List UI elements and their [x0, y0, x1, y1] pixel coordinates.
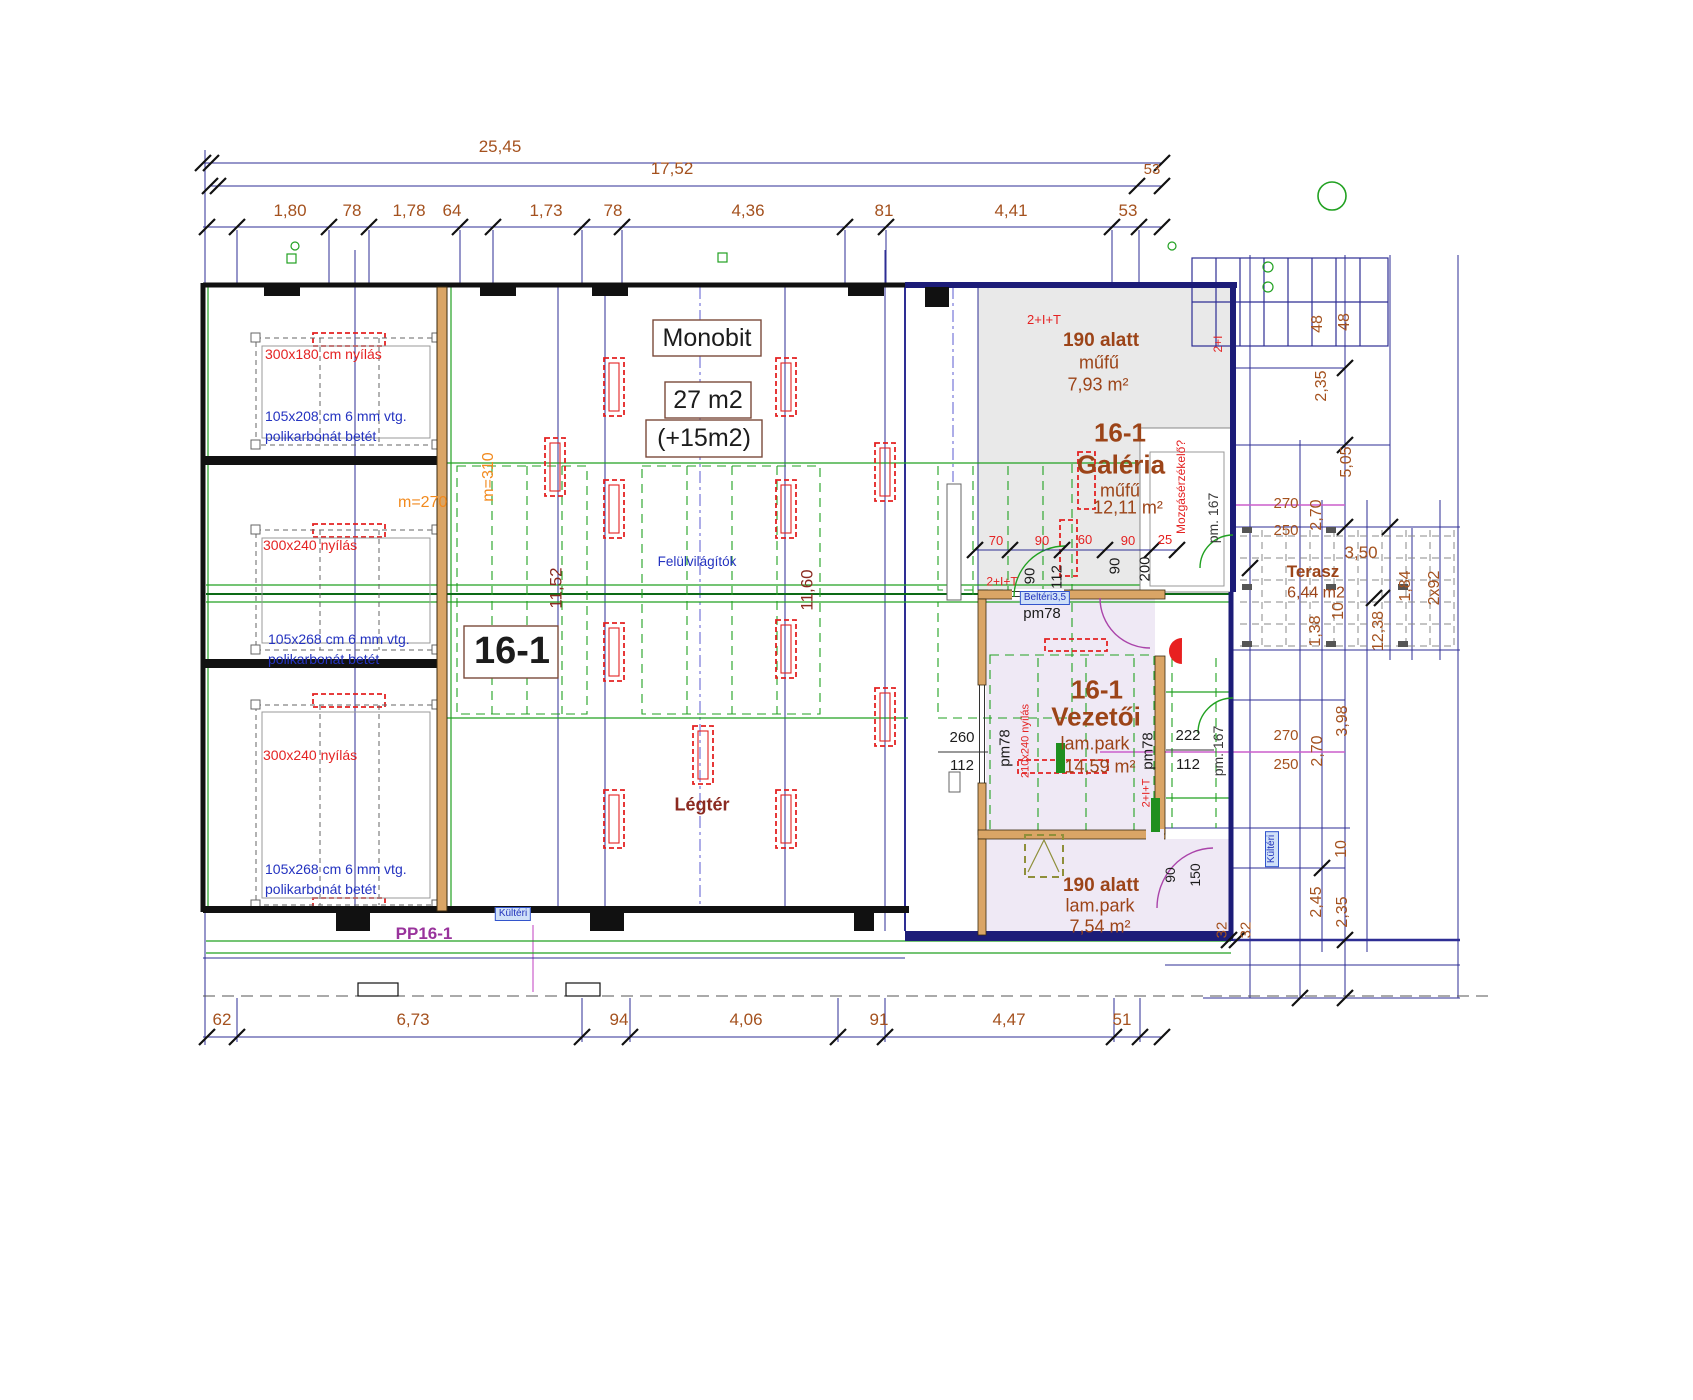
dim-top-seg: 4,41	[994, 202, 1027, 220]
hall-unit-label: 16-1	[474, 632, 550, 672]
door-dim: 60	[1078, 533, 1092, 547]
dim-right: 250	[1273, 757, 1298, 773]
bay3-infill-label: polikarbonát betét	[265, 881, 376, 897]
vezetoi-name-label: Vezetői	[1051, 703, 1141, 730]
dim-right: 2,35	[1335, 896, 1351, 927]
bay3-opening-label: 300x240 nyílás	[263, 747, 357, 763]
markers	[287, 182, 1346, 292]
door-dim: 90	[1035, 534, 1049, 548]
dim-top-inner: 17,52	[651, 160, 694, 178]
outdoor-tag-right: Kültéri	[1265, 831, 1279, 867]
hall-area-extra-label: (+15m2)	[657, 425, 751, 451]
lower-area-label: 7,54 m²	[1069, 918, 1130, 937]
dim-right: 2,70	[1310, 735, 1326, 766]
door-dim-v: 200	[1138, 556, 1153, 581]
lintel-label: pm78	[1023, 606, 1061, 622]
vezetoi-area-label: 14,59 m²	[1064, 758, 1135, 777]
galeria-area-label: 7,93 m²	[1067, 376, 1128, 395]
galeria-under-label: 190 alatt	[1063, 331, 1139, 351]
galeria-unit-label: 16-1	[1094, 419, 1146, 446]
dim-right: 270	[1273, 728, 1298, 744]
bay1-infill-label: 105x208 cm 6 mm vtg.	[265, 408, 407, 424]
door-width-label: 90	[1163, 867, 1177, 883]
door-dim: 70	[989, 534, 1003, 548]
dim-right: 32	[1239, 922, 1254, 939]
dim-right: 12,38	[1371, 611, 1387, 651]
label-boxes	[464, 320, 762, 678]
door-dim-v: 90	[1108, 558, 1123, 575]
dim-top-seg: 64	[443, 202, 462, 220]
bay3-infill-label: 105x268 cm 6 mm vtg.	[265, 861, 407, 877]
dim-right: 1,84	[1398, 570, 1414, 601]
circuit-tag: 2+I+T	[986, 576, 1017, 589]
dim-222: 222	[1175, 728, 1200, 744]
dim-top-seg: 53	[1119, 202, 1138, 220]
dim-bottom-seg: 94	[610, 1011, 629, 1029]
dim-right: 2,35	[1314, 370, 1330, 401]
hall-width-label: 11,52	[548, 567, 565, 608]
dim-top-seg: 1,78	[392, 202, 425, 220]
dim-top-seg: 1,73	[529, 202, 562, 220]
terasz-area-label: 6,44 m2	[1287, 586, 1345, 603]
dim-112: 112	[950, 758, 974, 774]
dim-top-total: 25,45	[479, 138, 522, 156]
bay1-infill-label: polikarbonát betét	[265, 428, 376, 444]
vezetoi-floor-label: lam.park	[1060, 735, 1129, 754]
dim-top-seg: 81	[875, 202, 894, 220]
dim-bottom-seg: 4,06	[729, 1011, 762, 1029]
terasz-name-label: Terasz	[1287, 563, 1340, 581]
door-dim-v: 90	[1023, 568, 1038, 585]
lower-under-label: 190 alatt	[1063, 876, 1139, 896]
pp16-partition-wall	[437, 287, 447, 911]
dim-right: 5,05	[1339, 446, 1355, 477]
dim-right: 48	[1310, 315, 1326, 333]
bay2-opening-label: 300x240 nyílás	[263, 537, 357, 553]
dim-bottom-seg: 51	[1113, 1011, 1132, 1029]
dim-top-end: 53	[1144, 162, 1161, 178]
dim-right: 2x92	[1427, 571, 1443, 606]
hall-area-label: 27 m2	[673, 387, 742, 413]
opening-label-v: 210x240 nyílás	[1021, 704, 1032, 778]
lower-floor-label: lam.park	[1065, 897, 1134, 916]
height-label-m270: m=270	[398, 494, 447, 512]
lintel-label-v: pm78	[998, 729, 1013, 767]
dim-top-seg: 1,80	[273, 202, 306, 220]
floor-plan-drawing	[0, 0, 1693, 1400]
height-label-m310: m=310	[481, 452, 497, 501]
motion-sensor-label: Mozgásérzékelő?	[1175, 440, 1187, 534]
bay2-infill-label: 105x268 cm 6 mm vtg.	[268, 631, 410, 647]
dim-right: 3,98	[1335, 705, 1351, 736]
dim-right: 2,45	[1309, 886, 1325, 917]
galeria-area2-label: 12,11 m²	[1093, 499, 1163, 518]
door-width-label: 150	[1188, 863, 1202, 886]
circuit-tag: 2+I	[1212, 335, 1224, 352]
skylight-label: Felülvilágítók	[658, 555, 737, 569]
hall-width-label: 11,60	[799, 569, 816, 610]
dim-top-seg: 78	[343, 202, 362, 220]
galeria-floor-label: műfű	[1079, 354, 1119, 373]
dim-right: 3,50	[1344, 544, 1377, 562]
lintel-label-v: pm78	[1141, 732, 1156, 770]
vezetoi-unit-label: 16-1	[1071, 676, 1123, 703]
door-swing-fill	[1169, 638, 1182, 664]
floor-plan-page: 25,45 17,52 53 1,80 78 1,78 64 1,73 78 4…	[0, 0, 1693, 1400]
beam-label-v: pm. 167	[1211, 726, 1225, 777]
dim-bottom-seg: 91	[870, 1011, 889, 1029]
dim-right: 270	[1273, 496, 1298, 512]
door-dim: 90	[1121, 534, 1135, 548]
door-dim: 25	[1158, 533, 1172, 547]
bay2-infill-label: polikarbonát betét	[268, 651, 379, 667]
dim-right: 10	[1331, 602, 1347, 620]
hall-name-label: Monobit	[663, 325, 752, 351]
dim-bottom-seg: 6,73	[396, 1011, 429, 1029]
column	[947, 484, 961, 600]
circuit-tag: 2+I+T	[1027, 313, 1061, 327]
outdoor-tag-bottom: Kültéri	[495, 907, 531, 921]
dim-right: 1,38	[1308, 615, 1324, 646]
dim-right: 10	[1334, 840, 1350, 858]
bay1-opening-label: 300x180 cm nyílás	[265, 346, 382, 362]
dim-top-seg: 4,36	[731, 202, 764, 220]
door-dim-v: 112	[1050, 565, 1065, 589]
dim-right: 250	[1273, 523, 1298, 539]
airspace-label: Légtér	[674, 796, 729, 815]
dim-top-seg: 78	[604, 202, 623, 220]
dim-260: 260	[949, 730, 974, 746]
dim-bottom-seg: 62	[213, 1011, 232, 1029]
dim-right: 2,70	[1309, 499, 1325, 530]
dim-112: 112	[1176, 757, 1200, 773]
beam-label: pm. 167	[1206, 493, 1220, 544]
dim-right: 32	[1215, 922, 1230, 939]
dim-bottom-seg: 4,47	[992, 1011, 1025, 1029]
dim-right: 48	[1337, 313, 1353, 331]
indoor-door-tag: Beltéri3,5	[1020, 591, 1070, 605]
circuit-tag-v: 2+I+T	[1142, 779, 1153, 808]
galeria-name-label: Galéria	[1077, 451, 1165, 478]
partition-label: PP16-1	[396, 925, 453, 943]
